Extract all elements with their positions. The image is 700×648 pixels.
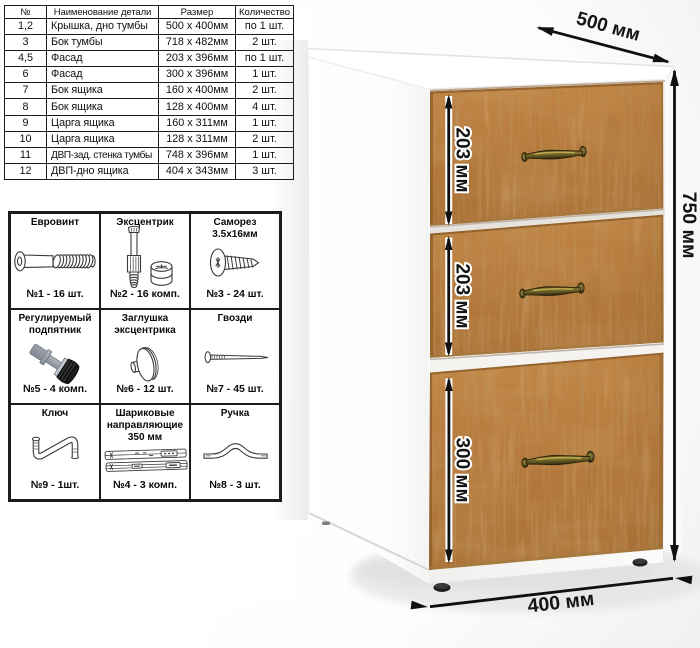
svg-text:203 мм: 203 мм [451,127,472,192]
svg-text:750 мм: 750 мм [678,192,700,259]
svg-text:203 мм: 203 мм [451,263,472,328]
svg-text:300 мм: 300 мм [451,437,472,502]
